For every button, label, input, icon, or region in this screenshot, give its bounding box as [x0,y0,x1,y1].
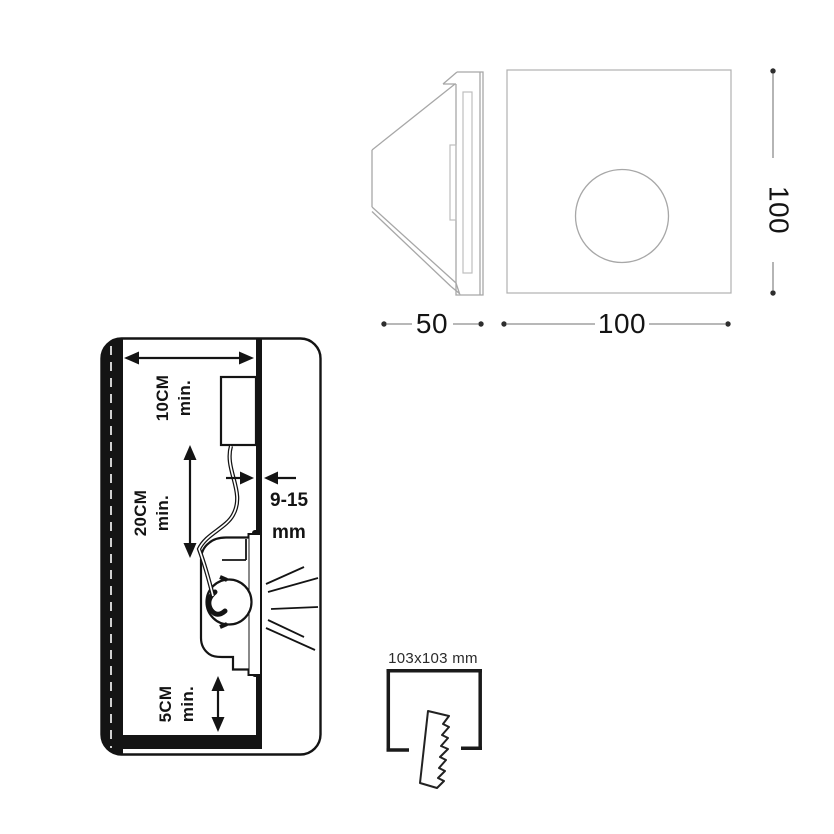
front-view-light-opening [576,170,669,263]
front-view [507,70,731,293]
side-view-lower-slant-inner [372,212,451,287]
dim-dot [770,68,775,73]
fixture-technical-diagram: 50 100 100 [0,0,834,834]
dim-dot [501,321,506,326]
front-width-value: 100 [598,308,646,339]
side-clearance-qualifier: min. [153,495,172,531]
recessed-fixture [201,534,261,675]
left-joist-bar [102,339,124,755]
side-width-value: 50 [416,308,448,339]
lamp-body [207,580,252,625]
side-view [372,72,483,295]
side-view-top-chamfer [443,72,457,84]
cutout-diagram: 103x103 mm [387,650,483,788]
saw-blade-icon [420,711,449,788]
dim-dot [381,321,386,326]
technical-drawing-sheet: 50 100 100 [0,0,834,834]
side-view-tip [451,283,460,294]
side-clearance-value: 20CM [131,490,150,537]
side-view-lower-slant-outer [372,207,456,283]
ceiling-panel-lower [256,674,262,735]
installation-diagram: 10CM min. 20CM min. 5CM min. 9-15 mm [102,339,321,755]
side-view-frame-outline [456,72,483,295]
cutout-size-label: 103x103 mm [388,650,478,667]
dimension-front-width: 100 [501,308,730,339]
front-height-value: 100 [764,186,795,234]
driver-box [221,377,256,445]
dimension-front-height: 100 [764,68,795,295]
dim-dot [770,290,775,295]
bottom-clearance-value: 5CM [156,686,175,723]
top-clearance-qualifier: min. [175,380,194,416]
dim-dot [478,321,483,326]
bottom-clearance-qualifier: min. [178,686,197,722]
dim-dot [725,321,730,326]
dimension-side-width: 50 [381,308,483,339]
lamp-clip-top [220,577,227,580]
side-view-tab [450,145,456,220]
panel-thickness-unit: mm [272,522,306,543]
bottom-joist-bar [118,735,262,749]
top-clearance-value: 10CM [153,375,172,422]
lamp-clip-bottom [220,624,227,627]
side-view-upper-slant [372,84,455,150]
panel-thickness-value: 9-15 [270,490,308,511]
side-view-slot [463,92,472,273]
